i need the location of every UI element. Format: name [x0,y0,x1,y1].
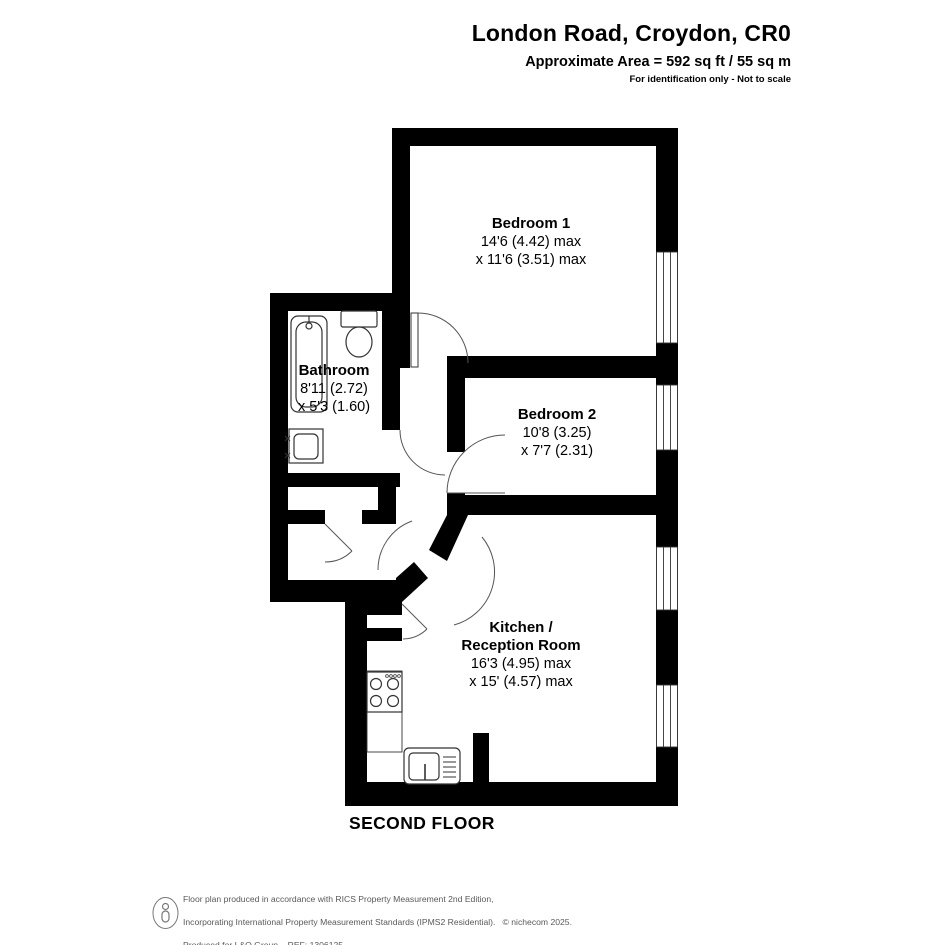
wall-kitchen-west [345,602,367,806]
wall-bedroom-divider [447,356,656,378]
wall-kitchen-stub [473,733,489,782]
footer-line2: Incorporating International Property Mea… [183,917,572,927]
wall-left [270,293,288,602]
wall-cupboard-front-right [362,510,394,524]
wall-bedroom2-west-corner [447,493,465,515]
room-label-bedroom2: Bedroom 2 10'8 (3.25) x 7'7 (2.31) [427,406,687,460]
wall-kitchen-cupboard-stub1 [367,602,402,615]
toilet [341,311,377,357]
bedroom2-dim1: 10'8 (3.25) [427,424,687,442]
washbasin [285,429,323,463]
door-hall-cupboard [325,524,352,562]
wall-cupboard-front-left [286,510,325,524]
footer-line1: Floor plan produced in accordance with R… [183,894,494,904]
wall-kitchen-top [465,495,656,515]
bedroom2-name: Bedroom 2 [427,406,687,424]
kitchen-name-line2: Reception Room [391,637,651,655]
wall-entry-diagonal-lower [396,562,428,602]
room-label-bathroom: Bathroom 8'11 (2.72) x 5'3 (1.60) [254,362,414,416]
nichecom-logo-icon [152,896,179,930]
bathroom-name: Bathroom [254,362,414,380]
floorplan-page: London Road, Croydon, CR0 Approximate Ar… [0,0,945,945]
bedroom1-name: Bedroom 1 [401,215,661,233]
wall-top [392,128,678,146]
kitchen-dim1: 16'3 (4.95) max [391,655,651,673]
bathroom-dim1: 8'11 (2.72) [254,380,414,398]
wall-bottom [345,782,678,806]
floor-label: SECOND FLOOR [349,813,495,834]
kitchen-dim2: x 15' (4.57) max [391,673,651,691]
bedroom2-dim2: x 7'7 (2.31) [427,442,687,460]
room-label-bedroom1: Bedroom 1 14'6 (4.42) max x 11'6 (3.51) … [401,215,661,269]
wall-entry-diagonal-upper [429,515,468,561]
footer-text: Floor plan produced in accordance with R… [183,894,572,945]
floor-plan-drawing [0,0,945,945]
bedroom1-dim1: 14'6 (4.42) max [401,233,661,251]
bathroom-dim2: x 5'3 (1.60) [254,398,414,416]
kitchen-name-line1: Kitchen / [391,619,651,637]
kitchen-sink [404,748,460,784]
window-kitchen-upper [657,547,678,610]
bedroom1-dim2: x 11'6 (3.51) max [401,251,661,269]
footer-line3: Produced for L&Q Group. REF: 1306125 [183,940,343,945]
wall-hall-bottom [272,580,402,602]
window-kitchen-lower [657,685,678,747]
wall-bathroom-top [270,293,410,311]
room-label-kitchen: Kitchen / Reception Room 16'3 (4.95) max… [391,619,651,691]
